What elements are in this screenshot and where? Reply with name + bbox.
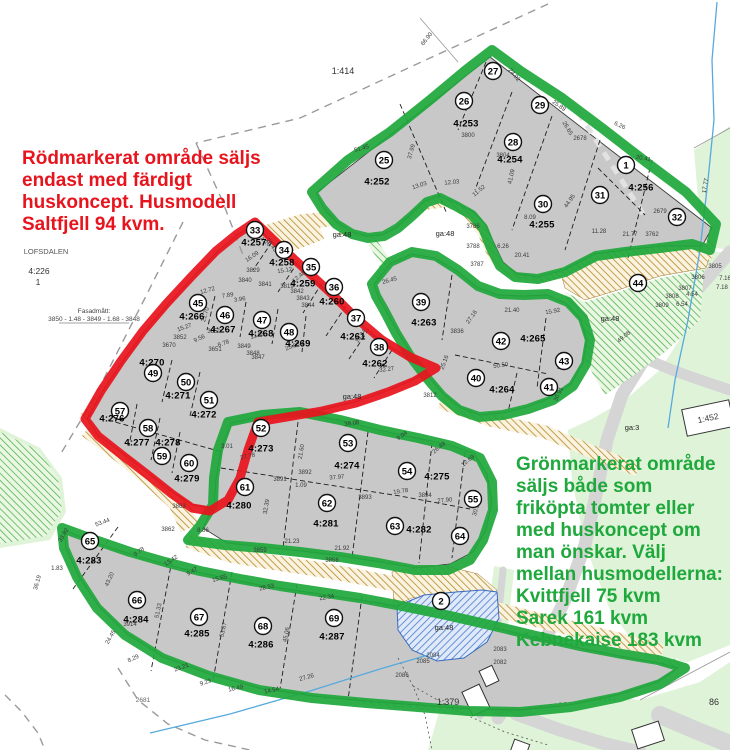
note-line-green: Kebnekaise 183 kvm (516, 630, 723, 652)
red-area-note: Rödmarkerat område säljsendast med färdi… (22, 148, 261, 236)
survey-label: 3670 (162, 343, 176, 349)
survey-label: 7.16 (719, 276, 730, 282)
map-label: LOFSDALEN (24, 247, 69, 256)
survey-label: 21.40 (504, 308, 520, 314)
lot-number-58: 58 (143, 423, 154, 434)
map-label: ga:3 (625, 423, 640, 432)
lot-number-25: 25 (379, 155, 390, 166)
lot-number-63: 63 (390, 521, 401, 532)
note-line-green: man önskar. Välj (516, 542, 723, 564)
plot-label-4:253: 4:253 (453, 118, 478, 129)
lot-number-41: 41 (544, 382, 555, 393)
survey-label: 20.41 (514, 253, 530, 259)
map-label: 4:226 (28, 266, 50, 276)
survey-label: 3829 (246, 268, 260, 274)
plot-label-4:280: 4:280 (226, 500, 251, 511)
plot-label-4:268: 4:268 (248, 328, 273, 339)
lot-number-28: 28 (508, 137, 519, 148)
survey-label: 3862 (161, 527, 175, 533)
lot-number-35: 35 (306, 262, 317, 273)
green-area-note: Grönmarkerat områdesäljs både somfriköpt… (516, 454, 723, 652)
plot-label-4:277: 4:277 (124, 437, 149, 448)
lot-number-62: 62 (322, 498, 333, 509)
map-label: 1:414 (332, 66, 355, 76)
lot-number-31: 31 (595, 190, 606, 201)
survey-label: 2082 (493, 660, 507, 666)
plot-label-4:264: 4:264 (489, 384, 515, 395)
survey-label: 2679 (653, 209, 667, 215)
survey-label: 3843 (296, 296, 310, 302)
survey-label: 3892 (298, 470, 312, 476)
plot-label-4:282: 4:282 (406, 524, 431, 535)
survey-label: 3808 (665, 294, 679, 300)
lot-number-38: 38 (374, 342, 385, 353)
lot-number-51: 51 (204, 395, 215, 406)
survey-label: 2085 (416, 659, 430, 665)
survey-label: 8.86 (197, 528, 209, 534)
survey-label: 7.18 (716, 285, 728, 291)
note-line-red: Rödmarkerat område säljs (22, 148, 261, 170)
plot-label-4:265: 4:265 (520, 333, 546, 344)
lot-number-69: 69 (329, 613, 340, 624)
note-line-green: med huskoncept om (516, 520, 723, 542)
plot-label-4:283: 4:283 (76, 555, 101, 566)
lot-number-48: 48 (284, 327, 295, 338)
plot-label-4:276: 4:276 (99, 413, 124, 424)
survey-label: 3847 (251, 355, 265, 361)
plot-label-4:270: 4:270 (139, 357, 164, 368)
plot-label-4:262: 4:262 (362, 358, 387, 369)
survey-label: 3788 (466, 244, 480, 250)
map-label: ga:48 (333, 230, 352, 239)
lot-number-64: 64 (455, 531, 466, 542)
lot-number-40: 40 (471, 373, 482, 384)
lot-number-46: 46 (220, 310, 231, 321)
note-line-red: huskoncept. Husmodell (22, 192, 261, 214)
survey-label: 3836 (450, 329, 464, 335)
survey-label: 3852 (173, 335, 187, 341)
boundary-dashed (5, 695, 45, 750)
lot-number-26: 26 (459, 96, 470, 107)
survey-label: 21.92 (334, 546, 350, 552)
survey-label: 3787 (470, 262, 484, 268)
lot-number-45: 45 (193, 298, 204, 309)
map-screenshot: 1:45266.9024.9251.4537.9938002678380425.… (0, 0, 730, 750)
note-line-green: Kvittfjell 75 kvm (516, 586, 723, 608)
plot-label-4:274: 4:274 (334, 460, 360, 471)
survey-label: 3894 (418, 493, 432, 499)
plot-label-4:271: 4:271 (165, 390, 191, 401)
plot-label-4:285: 4:285 (184, 628, 210, 639)
lot-number-67: 67 (194, 612, 205, 623)
lot-number-44: 44 (633, 278, 644, 289)
survey-label: 3858 (325, 558, 339, 564)
survey-label: 3800 (461, 133, 475, 139)
survey-label: 11.28 (592, 229, 607, 235)
map-label: 86 (709, 697, 719, 707)
plot-label-4:258: 4:258 (269, 257, 294, 268)
survey-label: 36.19 (33, 574, 43, 591)
plot-label-4:256: 4:256 (628, 182, 653, 193)
note-line-green: säljs både som (516, 476, 723, 498)
note-line-red: Saltfjell 94 kvm. (22, 214, 261, 236)
survey-label: 2086 (395, 673, 409, 679)
survey-label: 21.23 (284, 539, 300, 545)
plot-label-4:266: 4:266 (179, 311, 204, 322)
plot-label-4:269: 4:269 (285, 338, 310, 349)
lot-number-32: 32 (672, 212, 683, 223)
survey-label: 2678 (573, 136, 587, 142)
lot-number-60: 60 (184, 458, 195, 469)
survey-label: 1.09 (295, 483, 307, 489)
survey-label: 20.41 (635, 155, 651, 164)
plot-label-4:281: 4:281 (313, 518, 339, 529)
lot-number-65: 65 (85, 536, 96, 547)
plot-label-4:254: 4:254 (497, 154, 523, 165)
survey-label: 66.90 (420, 31, 434, 47)
map-label: 3850 - 1.48 - 3849 - 1.68 - 3848 (48, 316, 140, 323)
lot-number-53: 53 (343, 438, 354, 449)
lot-number-54: 54 (402, 466, 413, 477)
plot-label-4:273: 4:273 (248, 443, 273, 454)
lot-number-27: 27 (488, 66, 499, 77)
map-label: 1:379 (437, 697, 460, 707)
survey-label: 3812 (423, 393, 437, 399)
plot-label-4:257: 4:257 (241, 237, 266, 248)
survey-label: 3762 (645, 232, 659, 238)
note-line-green: Grönmarkerat område (516, 454, 723, 476)
survey-label: 6.26 (613, 121, 627, 132)
lot-number-50: 50 (181, 377, 192, 388)
lot-number-2: 2 (438, 596, 443, 607)
lot-number-30: 30 (538, 199, 549, 210)
survey-label: 3891 (273, 477, 287, 483)
survey-label: 1.83 (51, 566, 63, 572)
note-line-green: friköpta tomter eller (516, 498, 723, 520)
lot-number-36: 36 (329, 282, 340, 293)
survey-label: 6.26 (497, 244, 509, 250)
plot-label-4:284: 4:284 (123, 614, 149, 625)
plot-label-4:275: 4:275 (424, 471, 450, 482)
map-label: ga:48 (436, 229, 455, 238)
survey-label: 3805 (708, 264, 722, 270)
lot-number-49: 49 (148, 368, 159, 379)
survey-label: 4.54 (686, 292, 698, 298)
survey-label: 3859 (253, 548, 267, 554)
survey-label: 3841 (258, 282, 272, 288)
survey-label: 3844 (301, 303, 315, 309)
map-label: ga:48 (435, 623, 454, 632)
map-label: Fasadmått: (78, 307, 111, 315)
lot-number-42: 42 (496, 336, 507, 347)
survey-label: 3651 (208, 347, 222, 353)
lot-number-66: 66 (132, 595, 143, 606)
map-label: 2681 (136, 697, 151, 704)
plot-label-4:279: 4:279 (174, 473, 199, 484)
plot-label-4:267: 4:267 (210, 324, 235, 335)
lot-number-43: 43 (559, 356, 570, 367)
lot-number-52: 52 (256, 423, 267, 434)
note-line-red: endast med färdigt (22, 170, 261, 192)
plot-label-4:260: 4:260 (319, 296, 344, 307)
map-label: 1 (36, 277, 41, 287)
map-label: ga:48 (343, 392, 362, 401)
lot-number-1: 1 (623, 160, 629, 171)
survey-label: 3840 (238, 278, 252, 284)
survey-label: 2083 (493, 647, 507, 653)
survey-label: 3.01 (221, 444, 233, 450)
lot-number-37: 37 (351, 313, 362, 324)
plot-label-4:287: 4:287 (319, 631, 344, 642)
lot-number-68: 68 (258, 621, 269, 632)
survey-label: 3849 (237, 344, 251, 350)
survey-label: 3809 (655, 303, 669, 309)
lot-number-39: 39 (416, 297, 427, 308)
plot-label-4:261: 4:261 (340, 331, 366, 342)
note-line-green: mellan husmodellerna: (516, 564, 723, 586)
survey-label: 3786 (466, 224, 480, 230)
survey-label: 3842 (290, 289, 304, 295)
lot-number-59: 59 (157, 451, 168, 462)
survey-label: 21.77 (622, 232, 638, 238)
plot-label-4:278: 4:278 (155, 437, 180, 448)
lot-number-47: 47 (257, 315, 268, 326)
survey-label: 53.44 (95, 517, 112, 528)
map-label: ga:48 (601, 314, 620, 323)
lot-number-34: 34 (279, 245, 290, 256)
plot-label-4:259: 4:259 (290, 278, 315, 289)
survey-label: 6.54 (676, 302, 688, 308)
plot-label-4:255: 4:255 (529, 219, 555, 230)
plot-label-4:272: 4:272 (191, 409, 216, 420)
lot-number-29: 29 (535, 100, 546, 111)
survey-label: 3806 (691, 275, 705, 281)
plot-label-4:252: 4:252 (364, 176, 389, 187)
survey-label: 3863 (172, 504, 186, 510)
note-line-green: Sarek 161 kvm (516, 608, 723, 630)
lot-number-61: 61 (240, 482, 251, 493)
survey-label: 8.29 (127, 654, 141, 665)
plot-label-4:286: 4:286 (248, 639, 273, 650)
plot-label-4:263: 4:263 (411, 317, 436, 328)
survey-label: 3893 (358, 495, 372, 501)
lot-number-55: 55 (468, 494, 479, 505)
